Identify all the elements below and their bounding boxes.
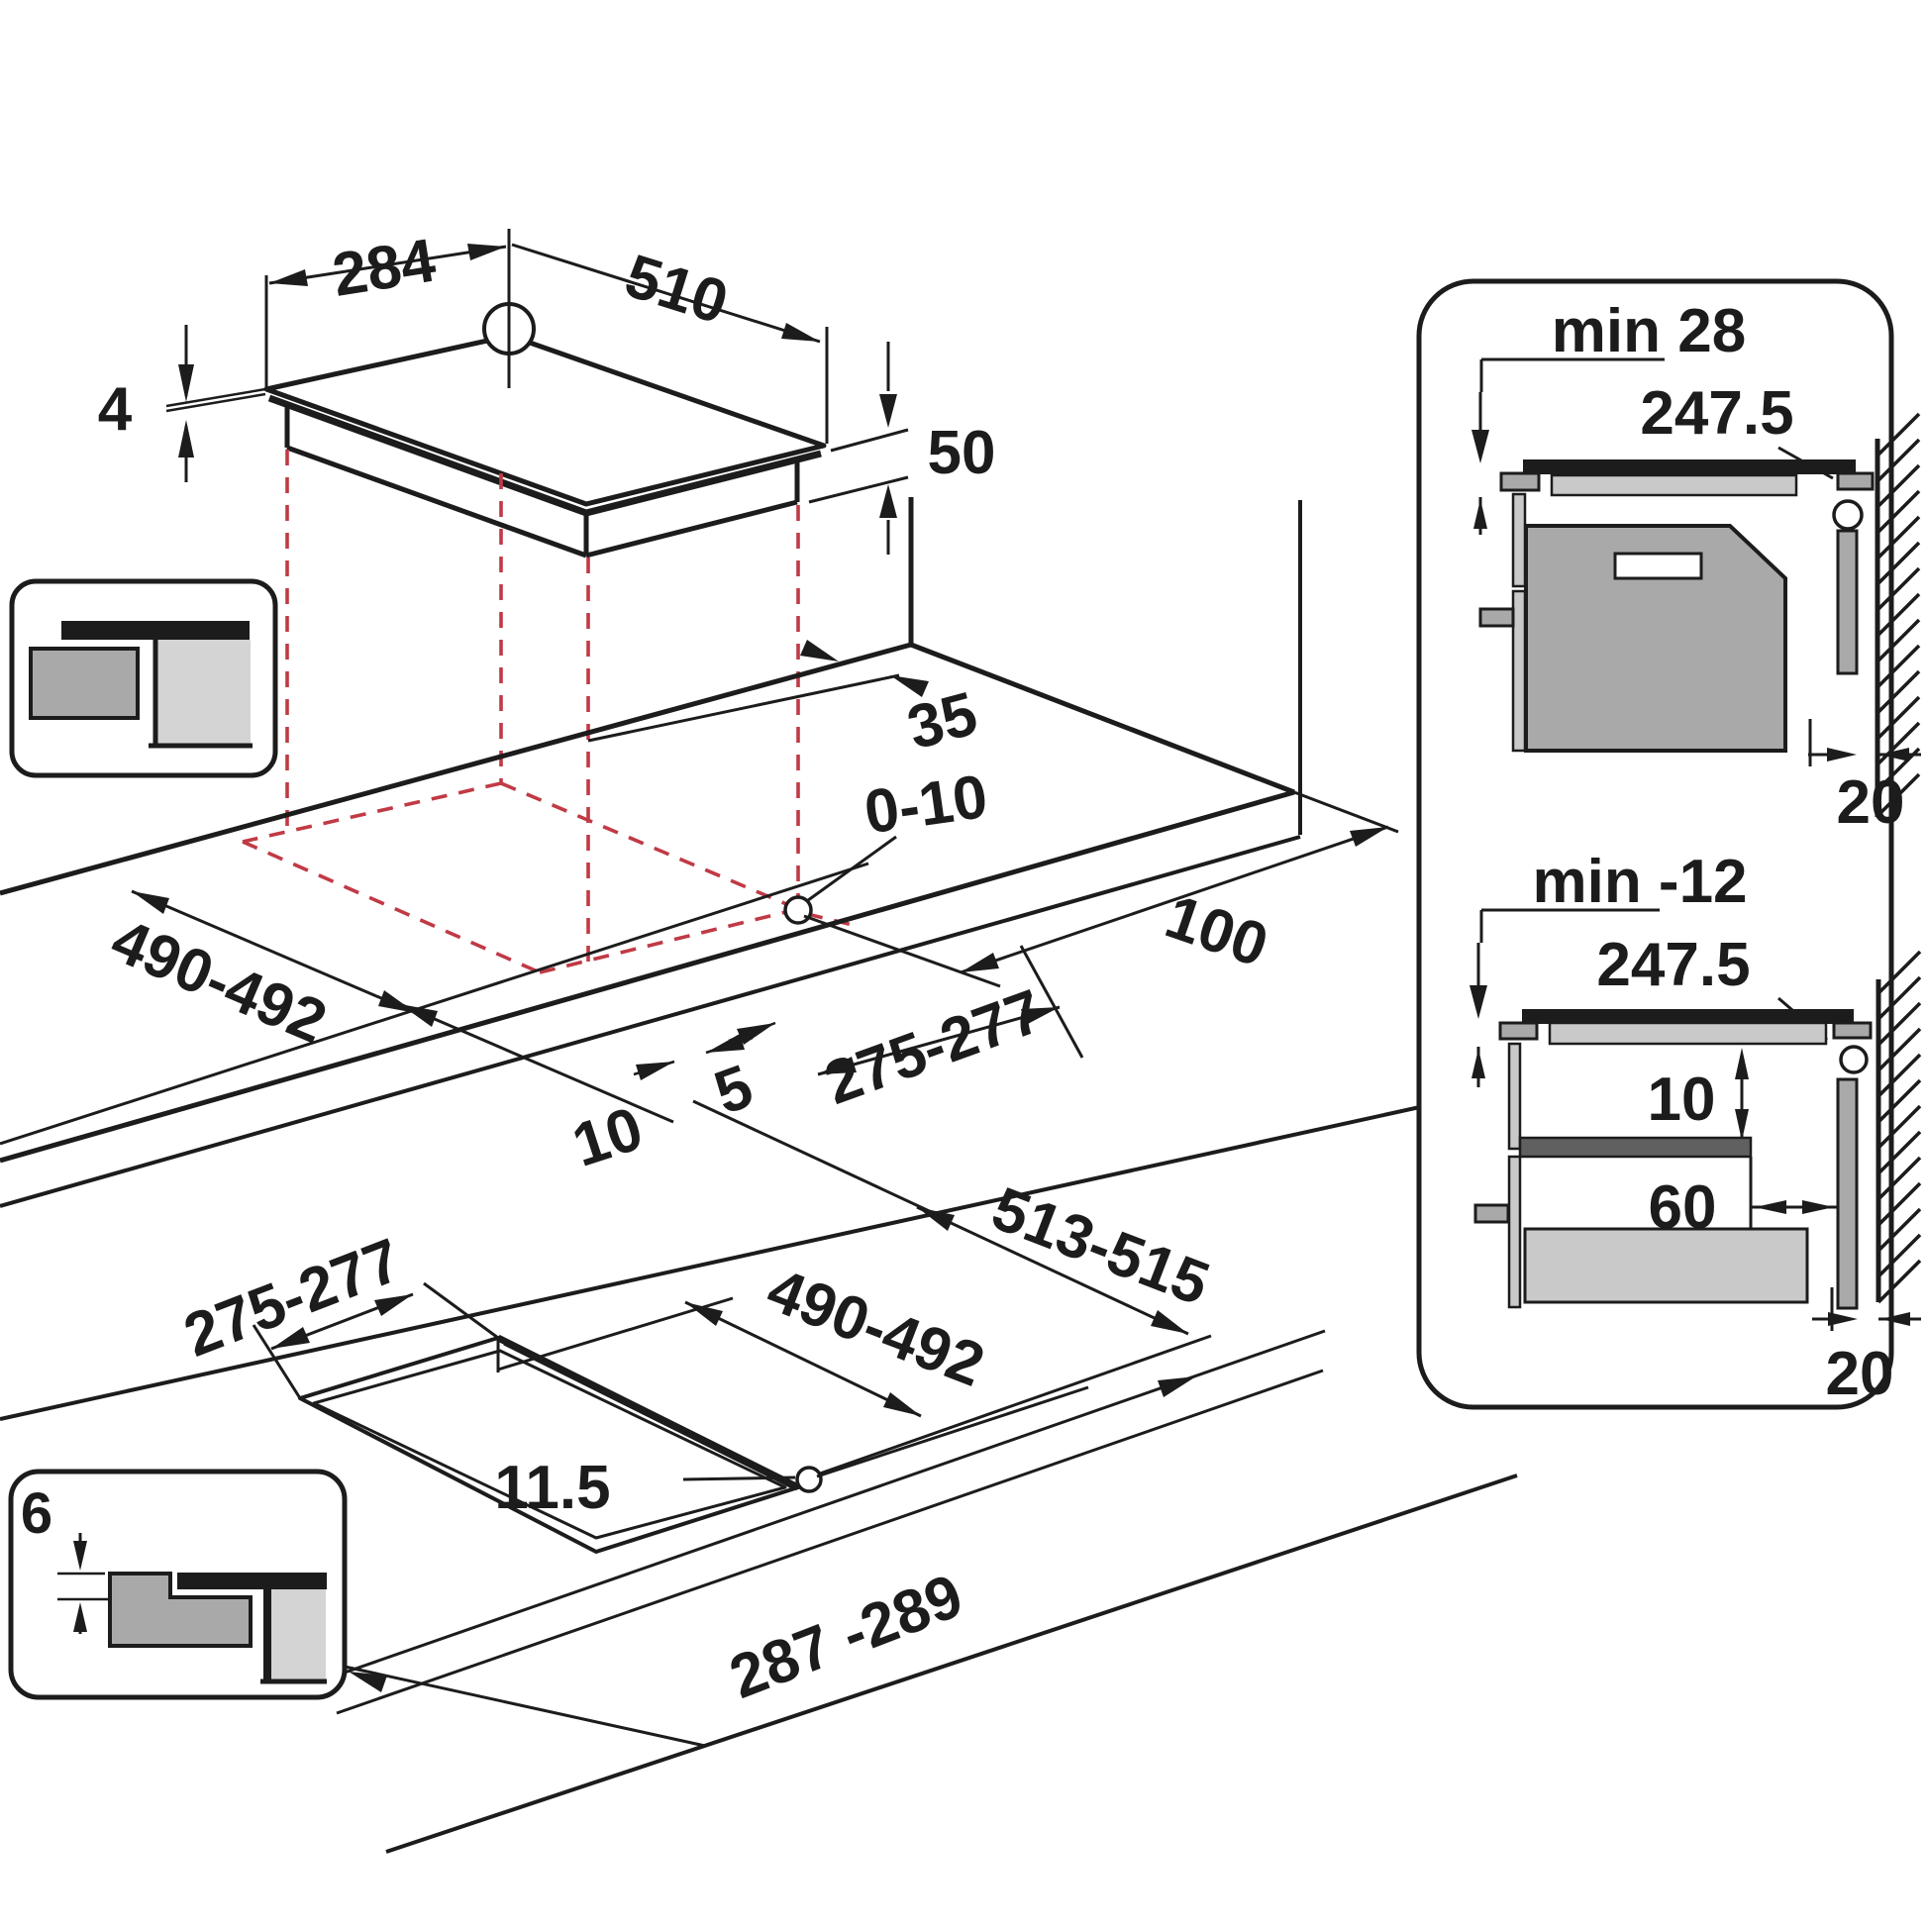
svg-text:10: 10 bbox=[1648, 1066, 1716, 1134]
svg-text:20: 20 bbox=[1837, 768, 1905, 837]
svg-text:20: 20 bbox=[1826, 1340, 1894, 1408]
svg-text:min -12: min -12 bbox=[1532, 848, 1747, 916]
svg-text:min 28: min 28 bbox=[1552, 297, 1746, 365]
svg-text:247.5: 247.5 bbox=[1596, 931, 1750, 999]
svg-text:4: 4 bbox=[98, 375, 133, 444]
svg-text:6: 6 bbox=[21, 1481, 52, 1546]
svg-text:247.5: 247.5 bbox=[1640, 379, 1793, 448]
svg-text:50: 50 bbox=[928, 419, 996, 487]
svg-text:11.5: 11.5 bbox=[494, 1454, 610, 1522]
